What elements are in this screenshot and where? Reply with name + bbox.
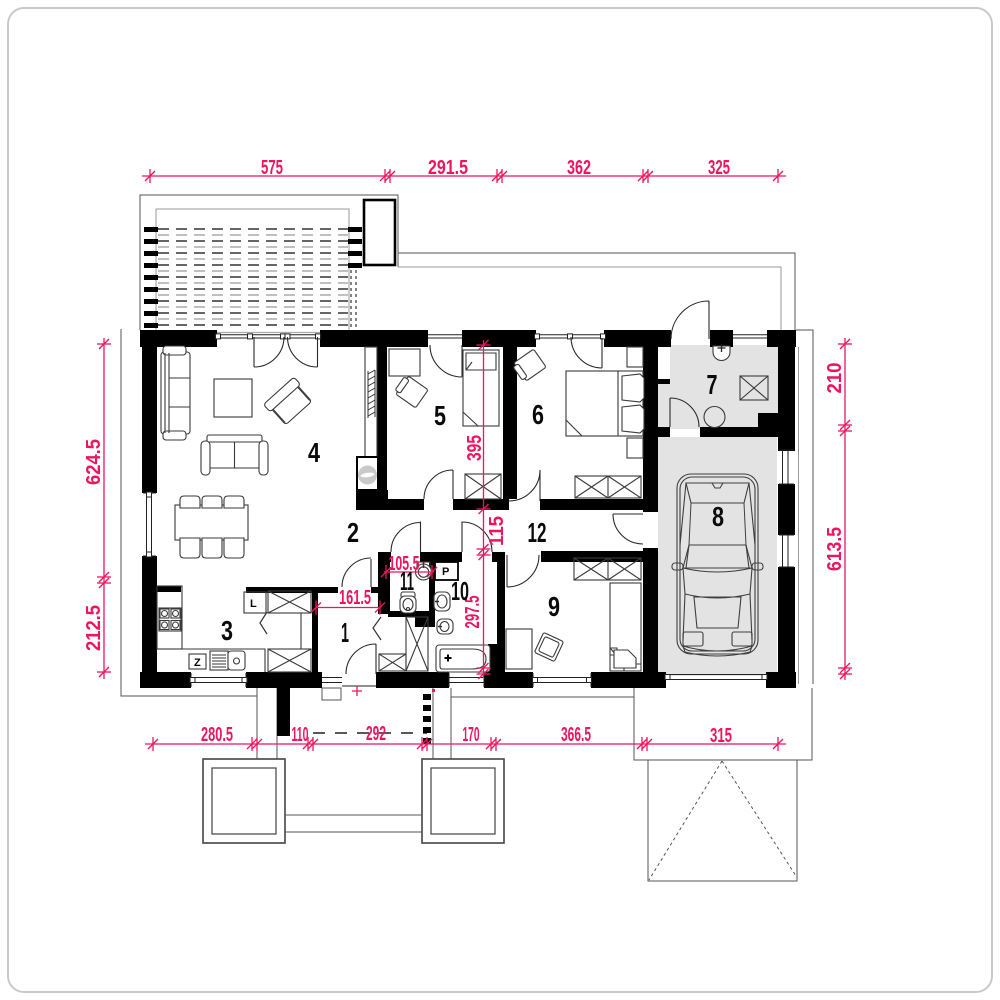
svg-text:366.5: 366.5 [561,724,591,746]
svg-text:212.5: 212.5 [83,605,105,651]
svg-text:3: 3 [221,615,233,646]
svg-text:161.5: 161.5 [339,587,371,609]
svg-text:L: L [250,598,257,610]
svg-text:362: 362 [567,157,591,179]
svg-text:170: 170 [463,724,480,746]
svg-text:11: 11 [400,566,414,596]
svg-text:1: 1 [341,617,349,648]
svg-text:110: 110 [292,724,309,746]
svg-text:5: 5 [434,400,446,431]
svg-text:291.5: 291.5 [428,157,468,179]
svg-text:613.5: 613.5 [824,527,846,571]
svg-text:4: 4 [308,437,320,468]
svg-text:Z: Z [194,657,201,669]
svg-text:10: 10 [451,576,469,606]
svg-text:280.5: 280.5 [201,724,233,746]
svg-text:624.5: 624.5 [83,439,105,485]
svg-text:115: 115 [486,516,508,546]
svg-text:9: 9 [548,591,560,622]
svg-text:210: 210 [824,363,846,394]
svg-text:395: 395 [464,435,486,461]
svg-text:8: 8 [712,501,724,532]
svg-text:292: 292 [366,723,386,745]
svg-text:575: 575 [261,157,283,179]
svg-text:2: 2 [347,517,359,548]
svg-text:6: 6 [532,399,544,430]
svg-text:325: 325 [708,157,730,179]
svg-text:315: 315 [710,725,732,747]
svg-text:12: 12 [528,517,547,548]
svg-text:7: 7 [707,369,718,400]
svg-text:P: P [442,566,449,578]
